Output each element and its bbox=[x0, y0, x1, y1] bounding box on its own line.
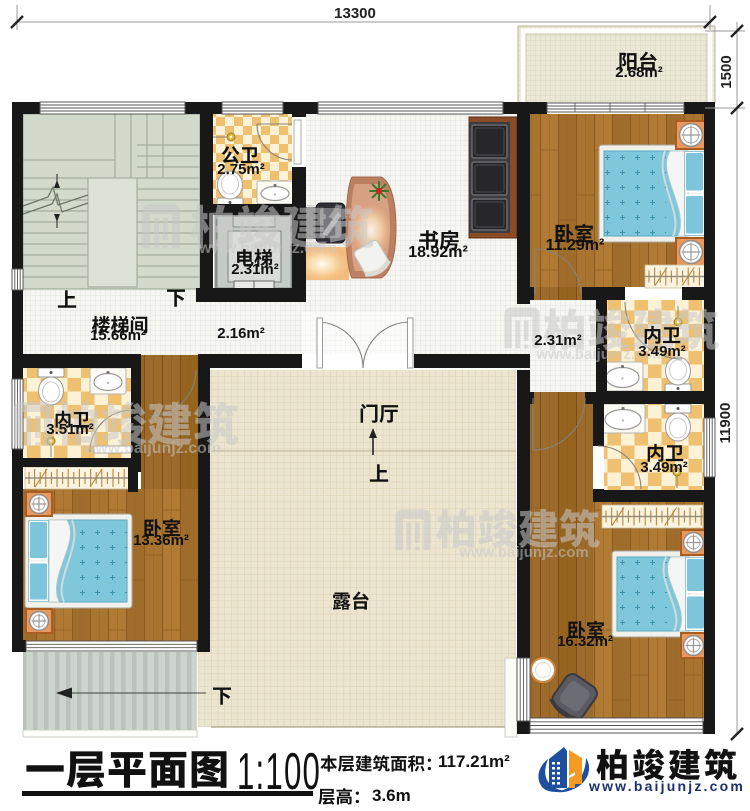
svg-text:13.36m²: 13.36m² bbox=[133, 532, 189, 549]
svg-text:3.6m: 3.6m bbox=[372, 786, 411, 805]
svg-text:www.baijunjz.com: www.baijunjz.com bbox=[458, 544, 588, 561]
svg-text:15.66m²: 15.66m² bbox=[90, 327, 146, 344]
svg-text:13300: 13300 bbox=[334, 5, 376, 22]
svg-text:3.49m²: 3.49m² bbox=[640, 459, 688, 476]
svg-text:2.68m²: 2.68m² bbox=[615, 64, 663, 81]
svg-text:11.29m²: 11.29m² bbox=[546, 237, 605, 254]
svg-text:16.32m²: 16.32m² bbox=[557, 633, 613, 650]
svg-text:11900: 11900 bbox=[717, 403, 734, 444]
svg-text:2.75m²: 2.75m² bbox=[217, 161, 265, 178]
svg-text:www.baijunjz.com: www.baijunjz.com bbox=[82, 440, 221, 457]
svg-text:3.51m²: 3.51m² bbox=[46, 421, 94, 438]
svg-text:2.16m²: 2.16m² bbox=[217, 325, 265, 342]
svg-text:3.49m²: 3.49m² bbox=[638, 343, 686, 360]
svg-text:18.92m²: 18.92m² bbox=[408, 244, 468, 261]
svg-text:www.baijunjz.com: www.baijunjz.com bbox=[588, 778, 745, 794]
svg-text:2.31m²: 2.31m² bbox=[231, 261, 279, 278]
svg-text:2.31m²: 2.31m² bbox=[534, 332, 582, 349]
svg-text:1500: 1500 bbox=[718, 55, 735, 88]
svg-text:117.21m²: 117.21m² bbox=[438, 752, 510, 771]
